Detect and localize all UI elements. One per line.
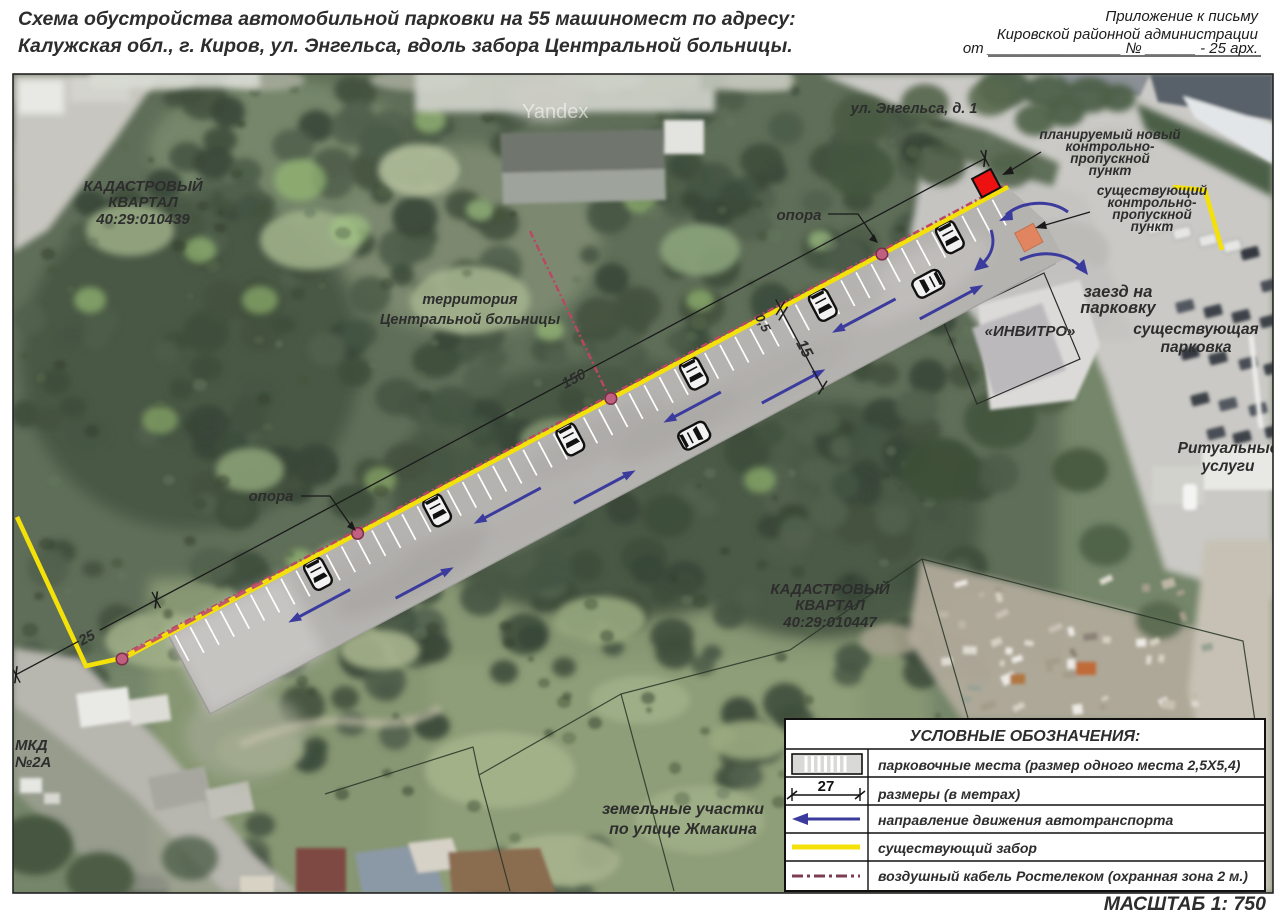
svg-text:УСЛОВНЫЕ ОБОЗНАЧЕНИЯ:: УСЛОВНЫЕ ОБОЗНАЧЕНИЯ: (910, 728, 1141, 745)
svg-text:«ИНВИТРО»: «ИНВИТРО» (985, 323, 1076, 340)
svg-text:существующий забор: существующий забор (878, 840, 1037, 856)
svg-text:от ________________ № ______: от ________________ № ______ - 25 арх. (963, 40, 1258, 57)
svg-text:КВАРТАЛ: КВАРТАЛ (108, 194, 178, 211)
svg-text:27: 27 (818, 778, 835, 795)
svg-text:опора: опора (249, 488, 294, 505)
svg-text:размеры (в метрах): размеры (в метрах) (877, 786, 1021, 802)
svg-text:территория: территория (422, 292, 518, 308)
svg-text:направление движения автотранс: направление движения автотранспорта (878, 812, 1173, 828)
svg-text:пункт: пункт (1089, 163, 1132, 178)
svg-text:40:29:010447: 40:29:010447 (782, 614, 877, 631)
svg-text:Центральной больницы: Центральной больницы (380, 312, 561, 328)
svg-text:МАСШТАБ 1: 750: МАСШТАБ 1: 750 (1104, 893, 1266, 915)
svg-text:КВАРТАЛ: КВАРТАЛ (795, 597, 865, 614)
svg-text:ул. Энгельса, д. 1: ул. Энгельса, д. 1 (850, 101, 978, 117)
svg-text:парковочные места (размер одно: парковочные места (размер одного места 2… (878, 757, 1241, 773)
svg-text:40:29:010439: 40:29:010439 (95, 211, 190, 228)
svg-text:земельные участки: земельные участки (602, 801, 764, 818)
svg-text:Приложение к письму: Приложение к письму (1105, 8, 1259, 25)
svg-text:№2А: №2А (15, 754, 51, 771)
svg-text:Yandex: Yandex (522, 101, 588, 123)
svg-text:воздушный кабель Ростелеком (о: воздушный кабель Ростелеком (охранная зо… (878, 868, 1248, 884)
svg-text:услуги: услуги (1200, 458, 1255, 475)
svg-text:пункт: пункт (1131, 219, 1174, 234)
svg-text:существующая: существующая (1133, 321, 1258, 338)
svg-text:по улице Жмакина: по улице Жмакина (609, 821, 757, 838)
svg-text:КАДАСТРОВЫЙ: КАДАСТРОВЫЙ (770, 580, 890, 598)
svg-text:КАДАСТРОВЫЙ: КАДАСТРОВЫЙ (83, 177, 203, 195)
svg-text:МКД: МКД (15, 737, 48, 754)
svg-text:Ритуальные: Ритуальные (1178, 440, 1279, 457)
svg-text:Схема обустройства автомобильн: Схема обустройства автомобильной парковк… (18, 8, 796, 30)
svg-text:опора: опора (777, 207, 822, 224)
svg-text:парковку: парковку (1080, 299, 1156, 317)
svg-text:Калужская обл., г. Киров, ул.: Калужская обл., г. Киров, ул. Энгельса, … (18, 35, 793, 57)
svg-text:парковка: парковка (1161, 339, 1232, 356)
